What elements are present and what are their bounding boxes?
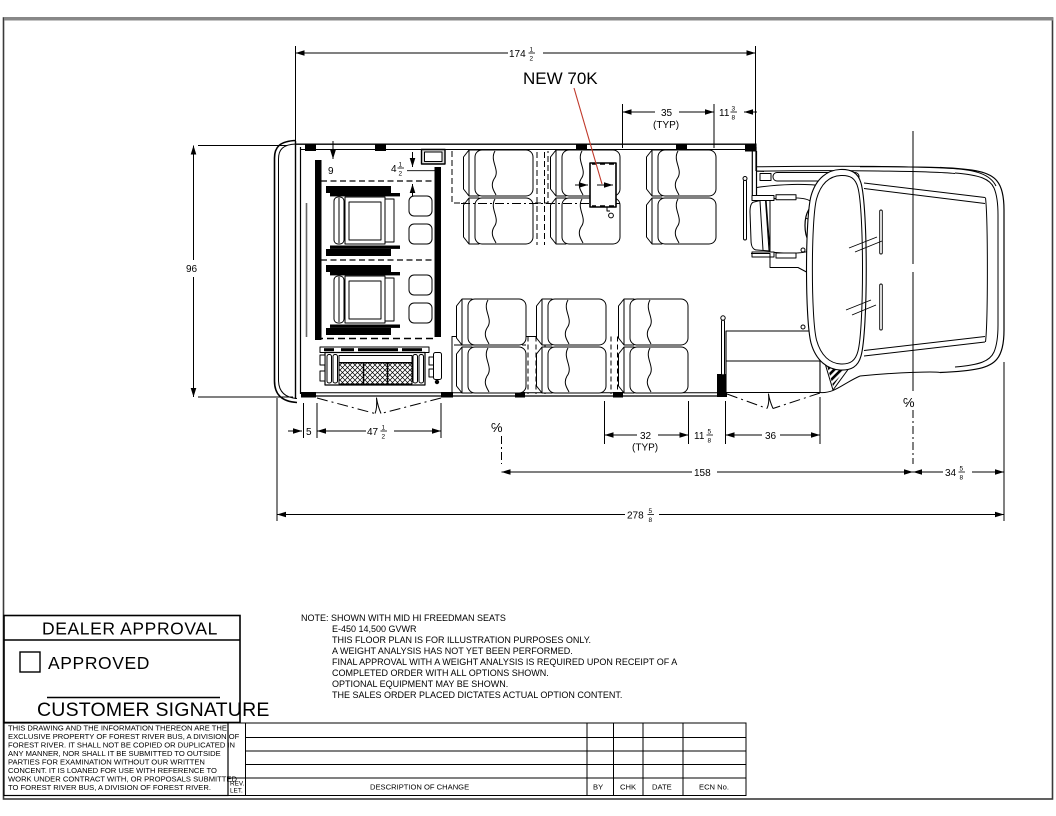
svg-text:8: 8 [732, 115, 736, 122]
svg-text:CHK: CHK [620, 783, 636, 792]
svg-text:DEALER APPROVAL: DEALER APPROVAL [42, 619, 218, 639]
svg-text:8: 8 [960, 475, 964, 482]
svg-text:℅: ℅ [491, 420, 503, 435]
svg-text:5: 5 [306, 427, 312, 438]
svg-text:LET.: LET. [230, 788, 243, 795]
svg-text:OPTIONAL EQUIPMENT MAY BE SHOW: OPTIONAL EQUIPMENT MAY BE SHOWN. [332, 679, 508, 689]
svg-text:1: 1 [530, 47, 534, 54]
svg-text:REV.: REV. [230, 781, 245, 788]
svg-text:NEW 70K: NEW 70K [523, 69, 598, 88]
svg-text:2: 2 [382, 434, 386, 441]
svg-text:2: 2 [399, 171, 403, 178]
svg-text:E-450 14,500 GVWR: E-450 14,500 GVWR [332, 624, 417, 634]
svg-text:(TYP): (TYP) [653, 120, 679, 131]
svg-text:℅: ℅ [903, 395, 915, 410]
svg-text:ECN No.: ECN No. [699, 783, 729, 792]
svg-text:1: 1 [399, 162, 403, 169]
svg-text:8: 8 [708, 438, 712, 445]
svg-text:96: 96 [186, 264, 198, 275]
svg-text:TO FOREST RIVER BUS, A DIVISIO: TO FOREST RIVER BUS, A DIVISION OF FORES… [8, 783, 211, 792]
svg-text:APPROVED: APPROVED [48, 653, 150, 673]
svg-text:11: 11 [694, 431, 705, 442]
svg-text:174: 174 [509, 49, 526, 60]
svg-text:34: 34 [945, 468, 957, 479]
svg-text:11: 11 [719, 108, 730, 119]
svg-text:5: 5 [708, 429, 712, 436]
svg-text:5: 5 [960, 466, 964, 473]
svg-text:NOTE: SHOWN WITH MID HI FREEDM: NOTE: SHOWN WITH MID HI FREEDMAN SEATS [301, 613, 506, 623]
svg-text:35: 35 [661, 108, 673, 119]
svg-text:DATE: DATE [652, 783, 672, 792]
svg-text:DESCRIPTION OF CHANGE: DESCRIPTION OF CHANGE [370, 783, 469, 792]
svg-text:3: 3 [732, 106, 736, 113]
svg-text:4: 4 [391, 164, 397, 175]
svg-text:(TYP): (TYP) [632, 443, 658, 454]
svg-text:47: 47 [367, 427, 379, 438]
svg-text:BY: BY [593, 783, 603, 792]
svg-text:THE SALES ORDER PLACED DICTATE: THE SALES ORDER PLACED DICTATES ACTUAL O… [332, 690, 622, 700]
svg-text:FINAL APPROVAL WITH A WEIGHT A: FINAL APPROVAL WITH A WEIGHT ANALYSIS IS… [332, 657, 677, 667]
svg-text:5: 5 [649, 508, 653, 515]
svg-text:1: 1 [382, 425, 386, 432]
svg-text:2: 2 [530, 56, 534, 63]
svg-text:A WEIGHT ANALYSIS HAS NOT YET: A WEIGHT ANALYSIS HAS NOT YET BEEN PERFO… [332, 646, 573, 656]
svg-text:278: 278 [627, 511, 644, 522]
svg-text:36: 36 [765, 431, 777, 442]
svg-text:158: 158 [694, 468, 711, 479]
svg-text:9: 9 [328, 166, 334, 177]
svg-text:CUSTOMER SIGNATURE: CUSTOMER SIGNATURE [37, 699, 270, 721]
svg-text:32: 32 [640, 431, 652, 442]
svg-text:8: 8 [649, 517, 653, 524]
svg-text:THIS FLOOR PLAN IS FOR ILLUST: THIS FLOOR PLAN IS FOR ILLUSTRATION PURP… [332, 635, 591, 645]
svg-text:COMPLETED ORDER WITH ALL OPTIO: COMPLETED ORDER WITH ALL OPTIONS SHOWN. [332, 668, 549, 678]
